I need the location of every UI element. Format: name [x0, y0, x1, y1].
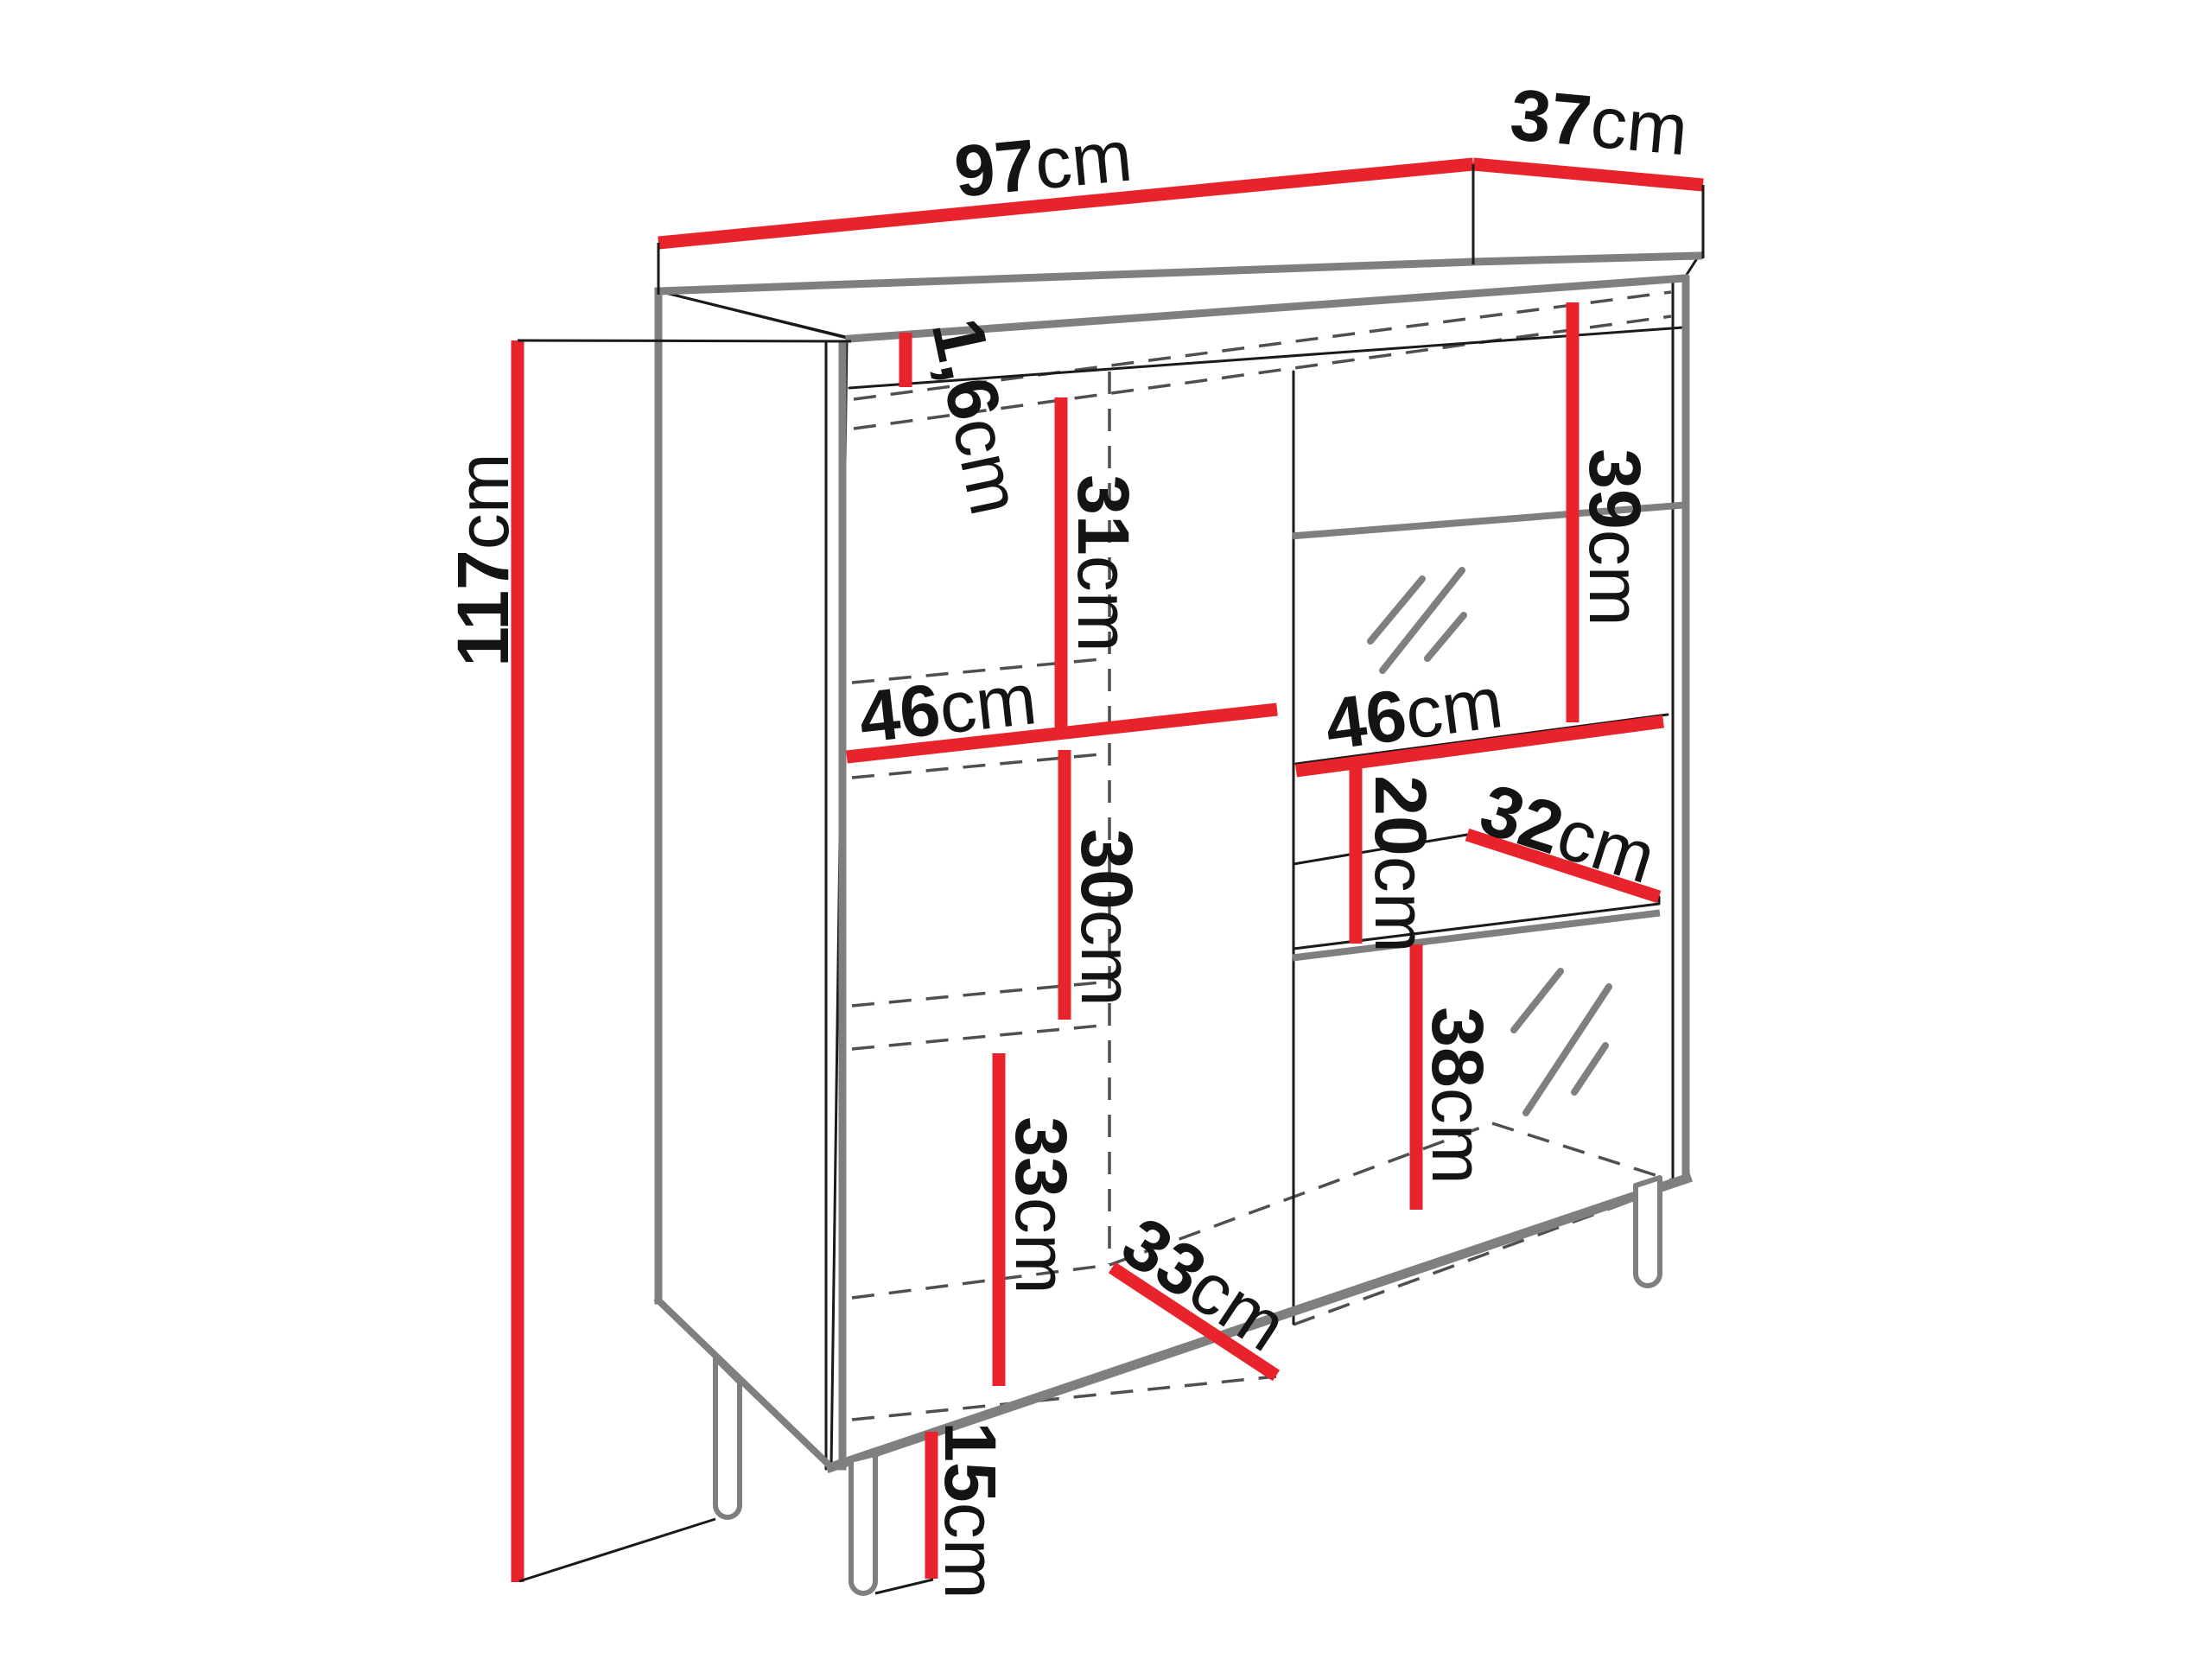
leg-front-left [851, 1454, 875, 1593]
dim-label-right-top-compartment: 39cm [1574, 448, 1656, 626]
extension-leg-bottom [875, 1580, 933, 1593]
dim-label-leg-height: 15cm [930, 1421, 1011, 1599]
cabinet-left-side-face [658, 291, 847, 1467]
dim-label-left-middle-compartment: 30cm [1066, 829, 1147, 1006]
dimension-diagram: 97cm 37cm 117cm 1,6cm 31cm 46cm 30cm 33c… [0, 0, 2212, 1659]
dim-label-overall-depth: 37cm [1507, 73, 1691, 170]
cabinet-diagram-canvas: 97cm 37cm 117cm 1,6cm 31cm 46cm 30cm 33c… [0, 0, 2212, 1659]
extension-height-top [518, 340, 851, 341]
leg-back-left [715, 1358, 740, 1517]
dim-label-right-small-compartment: 20cm [1360, 775, 1441, 952]
dim-label-left-bottom-compartment: 33cm [1001, 1116, 1082, 1294]
dim-label-overall-width: 97cm [950, 115, 1135, 213]
leg-front-right [1636, 1178, 1660, 1286]
extension-height-bottom [519, 1519, 715, 1581]
dim-label-left-top-compartment: 31cm [1063, 474, 1144, 652]
dim-label-overall-height: 117cm [442, 453, 524, 667]
dim-label-right-bottom-compartment: 38cm [1417, 1007, 1498, 1184]
